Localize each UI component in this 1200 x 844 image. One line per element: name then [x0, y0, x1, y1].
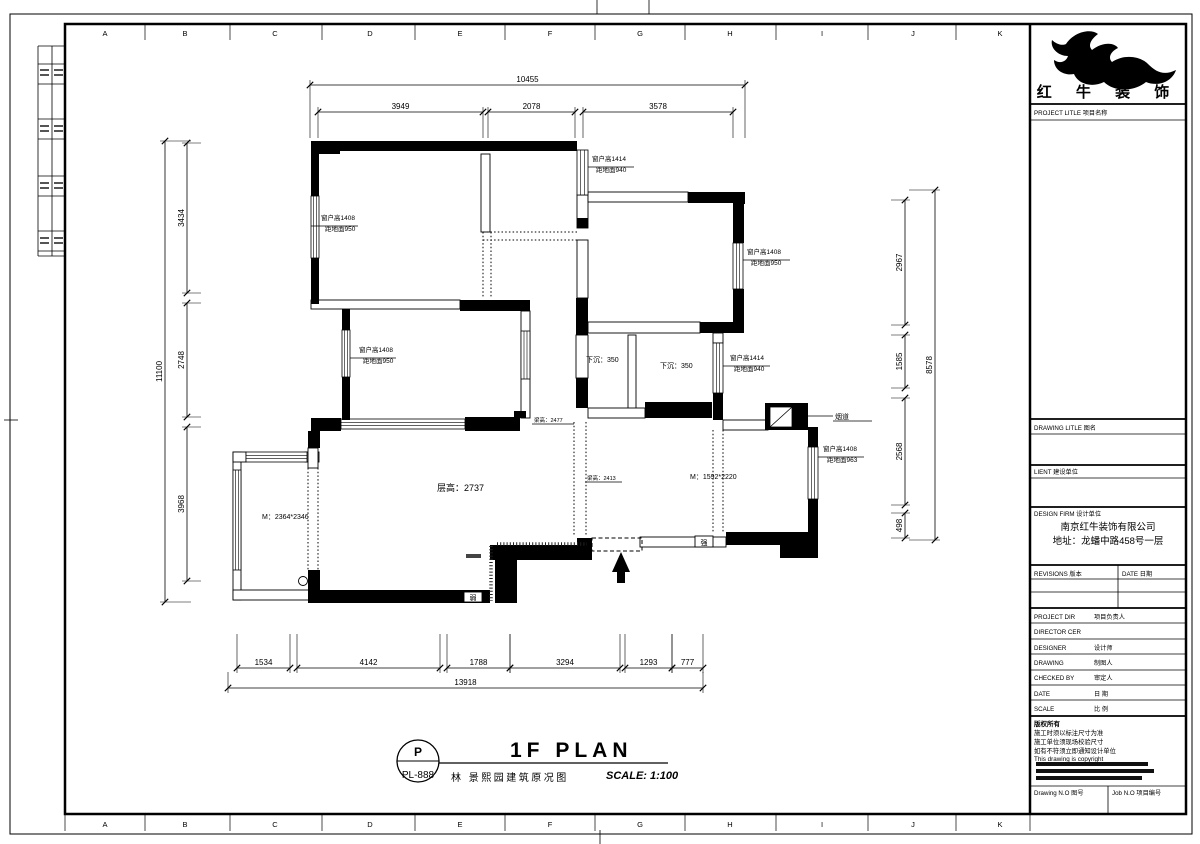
wall-solid	[577, 538, 592, 560]
window-annotation-line2: 距地面940	[734, 364, 765, 373]
window-annotation-line2: 距地面940	[596, 165, 627, 174]
job-no-label: Job N.O 项目编号	[1112, 789, 1161, 797]
grid-letter-top: G	[637, 29, 643, 38]
window	[246, 452, 307, 462]
dim-label: 2967	[895, 253, 904, 271]
titleblock-row-cn: 审定人	[1094, 674, 1113, 682]
dim-label: 11100	[155, 360, 164, 382]
plan-label: 烟道	[835, 412, 849, 421]
wall-thin	[233, 590, 311, 600]
window-annotation-line1: 窗户高1408	[747, 247, 781, 256]
project-title-label: PROJECT LITLE 项目名称	[1034, 109, 1107, 117]
titleblock-row-en: PROJECT DIR	[1034, 614, 1076, 621]
wall-thin	[233, 452, 246, 462]
margin-cell-text	[40, 182, 49, 184]
grid-letter-top: F	[548, 29, 553, 38]
dim-label: 10455	[516, 75, 539, 84]
wall-solid	[733, 192, 745, 204]
plan-scale: SCALE: 1:100	[606, 770, 679, 782]
illegible-text	[1036, 762, 1148, 766]
sheet-code-top: P	[414, 745, 422, 759]
window-annotation-line2: 距地面963	[827, 455, 858, 464]
margin-cell-text	[40, 125, 49, 127]
wall-thin	[308, 448, 318, 468]
illegible-text	[1036, 776, 1142, 780]
dim-label: 777	[681, 658, 695, 667]
window	[341, 419, 465, 429]
entry-arrow-stem	[617, 572, 625, 583]
grid-letter-bottom: B	[182, 820, 187, 829]
electric-box-label: 弱	[470, 594, 477, 602]
revisions-label: REVISIONS 版本	[1034, 570, 1082, 578]
wall-solid	[733, 203, 744, 243]
wall-solid	[308, 431, 320, 448]
window-annotation-line2: 距地面950	[363, 356, 394, 365]
titleblock-row-cn: 比 例	[1094, 705, 1108, 713]
window	[713, 343, 723, 393]
titleblock-thick-rules	[1030, 104, 1186, 716]
margin-cell-text	[54, 74, 63, 76]
dim-label: 1585	[895, 352, 904, 370]
margin-cell-text	[54, 182, 63, 184]
window-annotation-line2: 距地面950	[325, 224, 356, 233]
grid-letter-top: A	[102, 29, 107, 38]
window	[521, 331, 530, 379]
firm-address: 地址：龙蟠中路458号一层	[1053, 535, 1164, 547]
plan-label: 层高：2737	[437, 482, 484, 493]
wall-solid	[495, 560, 517, 603]
margin-cell-text	[54, 187, 63, 189]
grid-letter-top: J	[911, 29, 915, 38]
margin-cell-text	[40, 69, 49, 71]
window	[233, 470, 241, 570]
wall-solid	[311, 418, 341, 431]
client-label: LIENT 建设单位	[1034, 468, 1078, 476]
plan-label: M：1592*2220	[690, 474, 737, 481]
wall-thin	[311, 300, 460, 309]
door-dashed	[592, 538, 642, 551]
door-pivot	[299, 577, 308, 586]
illegible-text	[1036, 769, 1154, 773]
outer-border	[10, 14, 1192, 834]
wall-thin	[577, 240, 588, 298]
wall-solid	[490, 545, 587, 560]
copyright-line-4: This drawing is copyright	[1034, 756, 1104, 763]
wall-solid	[645, 402, 712, 418]
margin-cell-text	[40, 74, 49, 76]
window-annotation-line1: 窗户高1414	[730, 353, 764, 362]
plan-label: 梁高：2477	[534, 416, 563, 424]
grid-letter-bottom: D	[367, 820, 373, 829]
wall-thin	[588, 322, 700, 333]
wall-solid	[311, 141, 340, 154]
wall-thin	[628, 335, 636, 410]
titleblock-texts: 红 牛 装 饰 PROJECT LITLE 项目名称 DRAWING LITLE…	[1033, 83, 1179, 797]
dim-label: 13918	[454, 678, 477, 687]
floor-plan-canvas: 红 牛 装 饰 PROJECT LITLE 项目名称 DRAWING LITLE…	[0, 0, 1200, 844]
wall-solid	[340, 141, 577, 151]
window-annotation-line1: 窗户高1414	[592, 154, 626, 163]
grid-letter-bottom: J	[911, 820, 915, 829]
titleblock-row-en: SCALE	[1034, 706, 1054, 713]
dim-label: 3434	[177, 209, 186, 227]
window-annotation-line1: 窗户高1408	[359, 345, 393, 354]
grid-letter-bottom: K	[997, 820, 1002, 829]
margin-cell-text	[54, 130, 63, 132]
wall-solid	[576, 298, 588, 335]
grid-letter-top: B	[182, 29, 187, 38]
grid-letter-top: D	[367, 29, 373, 38]
copyright-line-1: 施工时须以标注尺寸为准	[1034, 728, 1103, 737]
grid-letter-bottom: F	[548, 820, 553, 829]
window-annotation-line1: 窗户高1408	[321, 213, 355, 222]
window	[808, 447, 818, 499]
grid-letter-bottom: E	[457, 820, 462, 829]
margin-cell-text	[40, 242, 49, 244]
margin-cell-text	[54, 125, 63, 127]
dim-label: 3578	[649, 102, 667, 111]
titleblock-row-cn: 设计师	[1094, 644, 1113, 652]
titleblock-row-cn: 项目负责人	[1094, 613, 1125, 621]
plan-subtitle: 林 景熙园建筑原况图	[451, 771, 569, 784]
wall-solid	[460, 300, 530, 311]
entry-arrow	[612, 552, 630, 572]
wall-thin	[588, 192, 688, 202]
dim-label: 3949	[392, 102, 410, 111]
sheet-code-bottom: PL-888	[402, 770, 435, 781]
margin-cell-text	[54, 69, 63, 71]
inner-frame	[65, 24, 1186, 814]
wall-solid	[465, 417, 520, 431]
dim-label: 3968	[177, 495, 186, 513]
plan-label: 下沉：350	[586, 356, 619, 364]
wall-thin	[723, 420, 768, 430]
dim-label: 2748	[177, 351, 186, 369]
titleblock-row-en: CHECKED BY	[1034, 675, 1074, 682]
grid-letter-bottom: I	[821, 820, 823, 829]
dim-label: 8578	[925, 356, 934, 374]
illegible-text	[466, 554, 481, 558]
wall-solid	[311, 258, 319, 304]
titleblock-row-cn: 日 期	[1094, 690, 1108, 698]
grid-letter-bottom: H	[727, 820, 732, 829]
window	[577, 150, 588, 195]
plan-label: 梁高：2413	[587, 474, 616, 482]
margin-cell-text	[54, 237, 63, 239]
titleblock-row-cn: 制图人	[1094, 659, 1113, 667]
grid-letter-bottom: A	[102, 820, 107, 829]
grid-letter-top: K	[997, 29, 1002, 38]
grid-letter-top: I	[821, 29, 823, 38]
wall-solid	[342, 377, 350, 420]
date-col-label: DATE 日期	[1122, 570, 1152, 578]
drawing-title-group: P PL-888 1F PLAN 林 景熙园建筑原况图 SCALE: 1:100	[397, 739, 679, 784]
wall-thin	[588, 408, 645, 418]
window	[311, 196, 319, 258]
drawing-title-label: DRAWING LITLE 图名	[1034, 424, 1096, 432]
wall-solid	[780, 532, 818, 558]
floor-plan-generated: 1045539492078357811100343427483968857829…	[4, 0, 1186, 844]
dim-label: 2078	[523, 102, 541, 111]
grid-letter-top: E	[457, 29, 462, 38]
titleblock-row-en: DATE	[1034, 691, 1050, 698]
wall-solid	[808, 427, 818, 447]
margin-cell-text	[40, 237, 49, 239]
window	[733, 243, 743, 289]
margin-cell-text	[40, 130, 49, 132]
wall-solid	[577, 218, 588, 228]
wall-solid	[576, 378, 588, 408]
margin-cell-text	[54, 242, 63, 244]
plan-label: M：2364*2346	[262, 514, 309, 521]
titleblock-row-en: DRAWING	[1034, 660, 1064, 667]
dim-label: 1293	[640, 658, 658, 667]
grid-letter-top: H	[727, 29, 732, 38]
wall-thin	[481, 154, 490, 232]
electric-box-label: 强	[701, 539, 708, 547]
dim-label: 3294	[556, 658, 574, 667]
plan-title: 1F PLAN	[510, 739, 633, 762]
sheet-frame	[10, 14, 1192, 834]
copyright-line-3: 如有不符须立即通知设计单位	[1034, 746, 1117, 755]
wall-solid	[342, 309, 350, 330]
wall-solid	[713, 393, 723, 420]
drawing-no-label: Drawing N.O 图号	[1034, 790, 1084, 797]
plan-label: 下沉：350	[660, 362, 693, 370]
company-name: 红 牛 装 饰	[1037, 83, 1180, 101]
redniu-bull-logo	[1052, 31, 1176, 89]
dim-label: 4142	[360, 658, 378, 667]
dim-label: 2568	[895, 442, 904, 460]
titleblock-row-en: DESIGNER	[1034, 645, 1067, 652]
window	[342, 330, 350, 377]
dim-label: 1534	[255, 658, 273, 667]
dim-label: 498	[895, 518, 904, 532]
wall-solid	[700, 322, 743, 333]
window-annotation-line1: 窗户高1408	[823, 444, 857, 453]
wall-thin	[713, 333, 723, 343]
titleblock-row-en: DIRECTOR CER	[1034, 629, 1082, 636]
grid-letter-top: C	[272, 29, 278, 38]
grid-letter-bottom: G	[637, 820, 643, 829]
design-firm-label: DESIGN FIRM 设计单位	[1034, 510, 1101, 518]
wall-solid	[311, 154, 319, 196]
dim-label: 1788	[470, 658, 488, 667]
firm-name: 南京红牛装饰有限公司	[1060, 521, 1155, 533]
drawing-sheet: 红 牛 装 饰 PROJECT LITLE 项目名称 DRAWING LITLE…	[0, 0, 1200, 844]
margin-cell-text	[40, 187, 49, 189]
window-annotation-line2: 距地面950	[751, 258, 782, 267]
wall-solid	[514, 411, 526, 418]
copyright-line-0: 版权所有	[1033, 719, 1061, 728]
grid-letter-bottom: C	[272, 820, 278, 829]
copyright-line-2: 施工单位须现场校验尺寸	[1034, 737, 1103, 746]
